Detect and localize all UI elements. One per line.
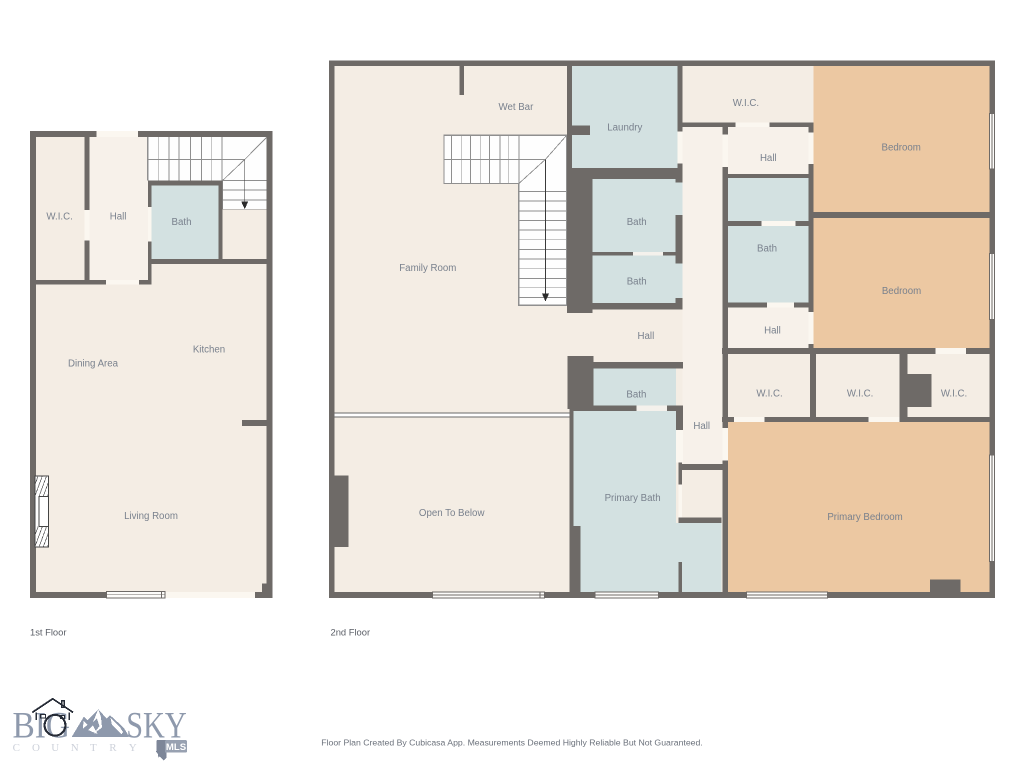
svg-text:W.I.C.: W.I.C. (46, 212, 72, 223)
svg-text:Hall: Hall (693, 421, 710, 432)
svg-text:Primary Bath: Primary Bath (605, 493, 661, 504)
svg-text:2nd Floor: 2nd Floor (331, 626, 371, 637)
svg-text:Dining Area: Dining Area (68, 359, 119, 370)
svg-text:C: C (13, 742, 20, 754)
svg-text:Bath: Bath (627, 217, 647, 228)
svg-text:Primary Bedroom: Primary Bedroom (827, 512, 902, 523)
svg-text:Living Room: Living Room (124, 511, 178, 522)
svg-text:W.I.C.: W.I.C. (756, 388, 782, 399)
svg-text:Bath: Bath (627, 277, 647, 288)
svg-text:Hall: Hall (760, 153, 777, 164)
svg-text:Bedroom: Bedroom (882, 142, 921, 153)
svg-text:W.I.C.: W.I.C. (733, 98, 759, 109)
svg-text:R: R (109, 742, 117, 754)
svg-text:T: T (90, 742, 97, 754)
svg-text:Wet Bar: Wet Bar (498, 102, 534, 113)
svg-text:1st Floor: 1st Floor (30, 626, 66, 637)
svg-text:Y: Y (129, 742, 137, 754)
svg-text:BIG: BIG (13, 706, 71, 747)
svg-text:Kitchen: Kitchen (193, 345, 225, 356)
svg-text:Hall: Hall (110, 212, 127, 223)
svg-text:Bath: Bath (626, 390, 646, 401)
svg-text:O: O (32, 742, 40, 754)
svg-text:N: N (71, 742, 79, 754)
svg-text:U: U (51, 742, 59, 754)
svg-text:Bedroom: Bedroom (882, 286, 921, 297)
svg-text:Bath: Bath (172, 217, 192, 228)
svg-text:Bath: Bath (757, 244, 777, 255)
svg-text:Open To Below: Open To Below (419, 508, 486, 519)
svg-text:Hall: Hall (638, 331, 655, 342)
svg-text:W.I.C.: W.I.C. (847, 388, 873, 399)
svg-text:Floor Plan Created By Cubicasa: Floor Plan Created By Cubicasa App. Meas… (321, 738, 702, 748)
svg-text:Hall: Hall (764, 325, 781, 336)
svg-text:MLS: MLS (166, 742, 187, 753)
svg-text:W.I.C.: W.I.C. (941, 388, 967, 399)
svg-text:Family Room: Family Room (399, 263, 456, 274)
svg-text:Laundry: Laundry (607, 122, 642, 133)
